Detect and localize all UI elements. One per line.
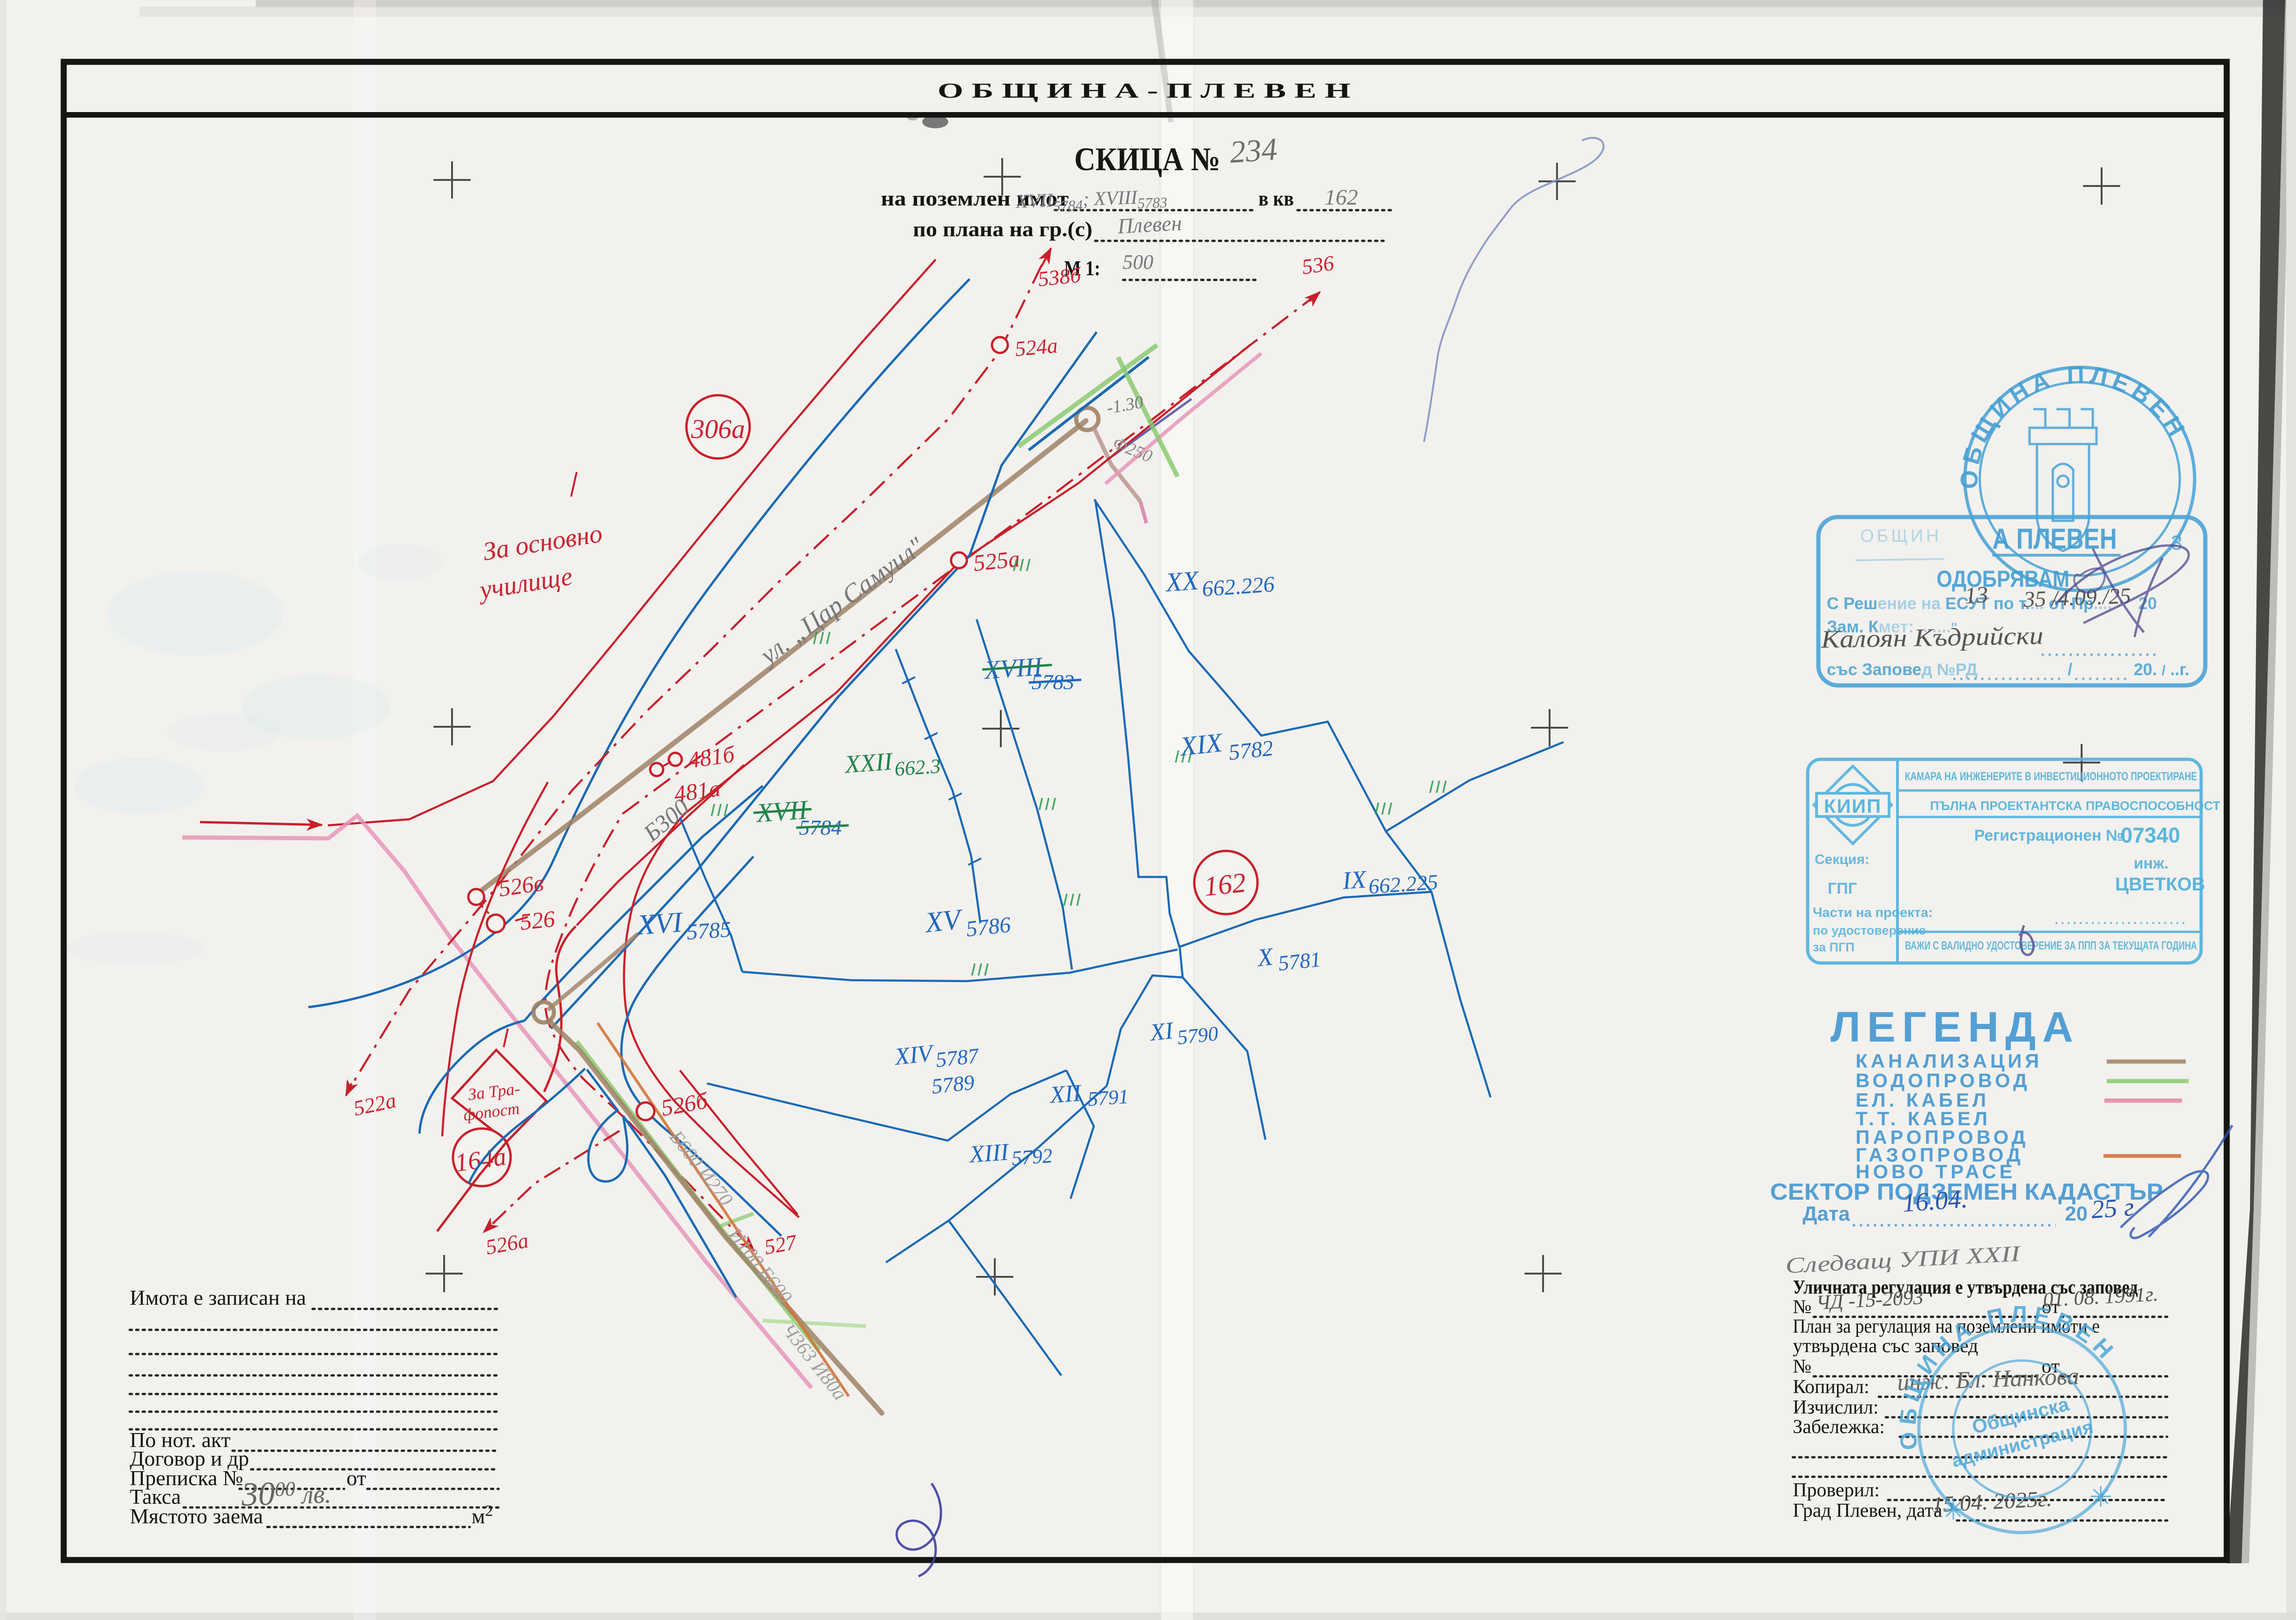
svg-text:20: 20 — [2065, 1202, 2088, 1225]
svg-text:КИИП: КИИП — [1824, 795, 1882, 817]
svg-text:по плана на гр.(с): по плана на гр.(с) — [913, 217, 1092, 241]
svg-text:Изчислил:: Изчислил: — [1793, 1397, 1878, 1418]
svg-text:Проверил:: Проверил: — [1793, 1480, 1880, 1501]
svg-text:536: 536 — [1300, 251, 1335, 279]
svg-text:16.04.: 16.04. — [1902, 1184, 1969, 1218]
svg-text:20. / ..г.: 20. / ..г. — [2134, 660, 2190, 679]
svg-text:Забележка:: Забележка: — [1793, 1416, 1885, 1438]
svg-text:№: № — [1793, 1356, 1811, 1377]
svg-text:от: от — [346, 1466, 366, 1490]
svg-text:Секция:: Секция: — [1815, 852, 1870, 867]
svg-text:526: 526 — [519, 905, 556, 935]
svg-text:Мястото заема: Мястото заема — [130, 1504, 263, 1528]
svg-text:Части на проекта:: Части на проекта: — [1813, 905, 1933, 920]
svg-text:Копирал:: Копирал: — [1793, 1376, 1870, 1398]
svg-text:3: 3 — [2171, 531, 2182, 554]
svg-text:ОБЩИН: ОБЩИН — [1860, 526, 1942, 546]
svg-text:Плевен: Плевен — [1117, 211, 1183, 238]
svg-text:ЦВЕТКОВ: ЦВЕТКОВ — [2115, 874, 2205, 895]
svg-text:5789: 5789 — [931, 1070, 976, 1098]
svg-text:Регистрационен №: Регистрационен № — [1974, 827, 2123, 844]
svg-text:в кв: в кв — [1258, 186, 1294, 210]
svg-text:Калоян Къдрийски: Калоян Къдрийски — [1820, 622, 2043, 653]
svg-text:✳: ✳ — [1942, 1494, 1965, 1526]
svg-text:със Заповед №РД: със Заповед №РД — [1827, 660, 1977, 679]
svg-text:О Б Щ И Н А - П Л Е В Е Н: О Б Щ И Н А - П Л Е В Е Н — [938, 79, 1351, 102]
svg-text:ЛЕГЕНДА: ЛЕГЕНДА — [1830, 1003, 2080, 1051]
svg-text:по удостоверение: по удостоверение — [1813, 923, 1926, 937]
svg-text:/: / — [2068, 660, 2072, 679]
svg-text:ГПГ: ГПГ — [1828, 880, 1857, 897]
svg-text:ПЪЛНА ПРОЕКТАНТСКА ПРАВОСПОСОБ: ПЪЛНА ПРОЕКТАНТСКА ПРАВОСПОСОБНОСТ — [1930, 799, 2221, 813]
svg-text:538б: 538б — [1037, 263, 1083, 291]
svg-text:13: 13 — [1964, 581, 1989, 609]
svg-text:Дата: Дата — [1803, 1202, 1850, 1225]
svg-text:✳: ✳ — [2089, 1481, 2112, 1513]
svg-text:162: 162 — [1324, 185, 1358, 210]
svg-text:КАМАРА НА ИНЖЕНЕРИТЕ В ИНВЕСТИ: КАМАРА НА ИНЖЕНЕРИТЕ В ИНВЕСТИЦИОННОТО П… — [1905, 770, 2197, 783]
svg-text:Имота е записан на: Имота е записан на — [130, 1286, 306, 1309]
svg-text:ВОДОПРОВОД: ВОДОПРОВОД — [1856, 1069, 2030, 1091]
svg-text:ВАЖИ С ВАЛИДНО УДОСТОВЕРЕНИЕ З: ВАЖИ С ВАЛИДНО УДОСТОВЕРЕНИЕ ЗА ППП ЗА Т… — [1905, 939, 2197, 952]
svg-text:№: № — [1793, 1296, 1811, 1318]
svg-text:306а: 306а — [691, 414, 745, 444]
svg-text:за ПГП: за ПГП — [1813, 940, 1855, 954]
svg-text:162: 162 — [1203, 867, 1247, 902]
svg-text:А ПЛЕВЕН: А ПЛЕВЕН — [1992, 523, 2117, 555]
svg-text:524а: 524а — [1014, 333, 1058, 361]
svg-text:Град Плевен, дата: Град Плевен, дата — [1793, 1500, 1943, 1521]
svg-text:525а: 525а — [972, 545, 1021, 576]
svg-text:КАНАЛИЗАЦИЯ: КАНАЛИЗАЦИЯ — [1856, 1050, 2043, 1072]
svg-text:500: 500 — [1123, 251, 1153, 273]
svg-text:07340: 07340 — [2121, 823, 2180, 847]
svg-text:инж.: инж. — [2134, 855, 2169, 872]
svg-text:234: 234 — [1229, 131, 1278, 170]
svg-text:СКИЦА №: СКИЦА № — [1074, 141, 1220, 178]
